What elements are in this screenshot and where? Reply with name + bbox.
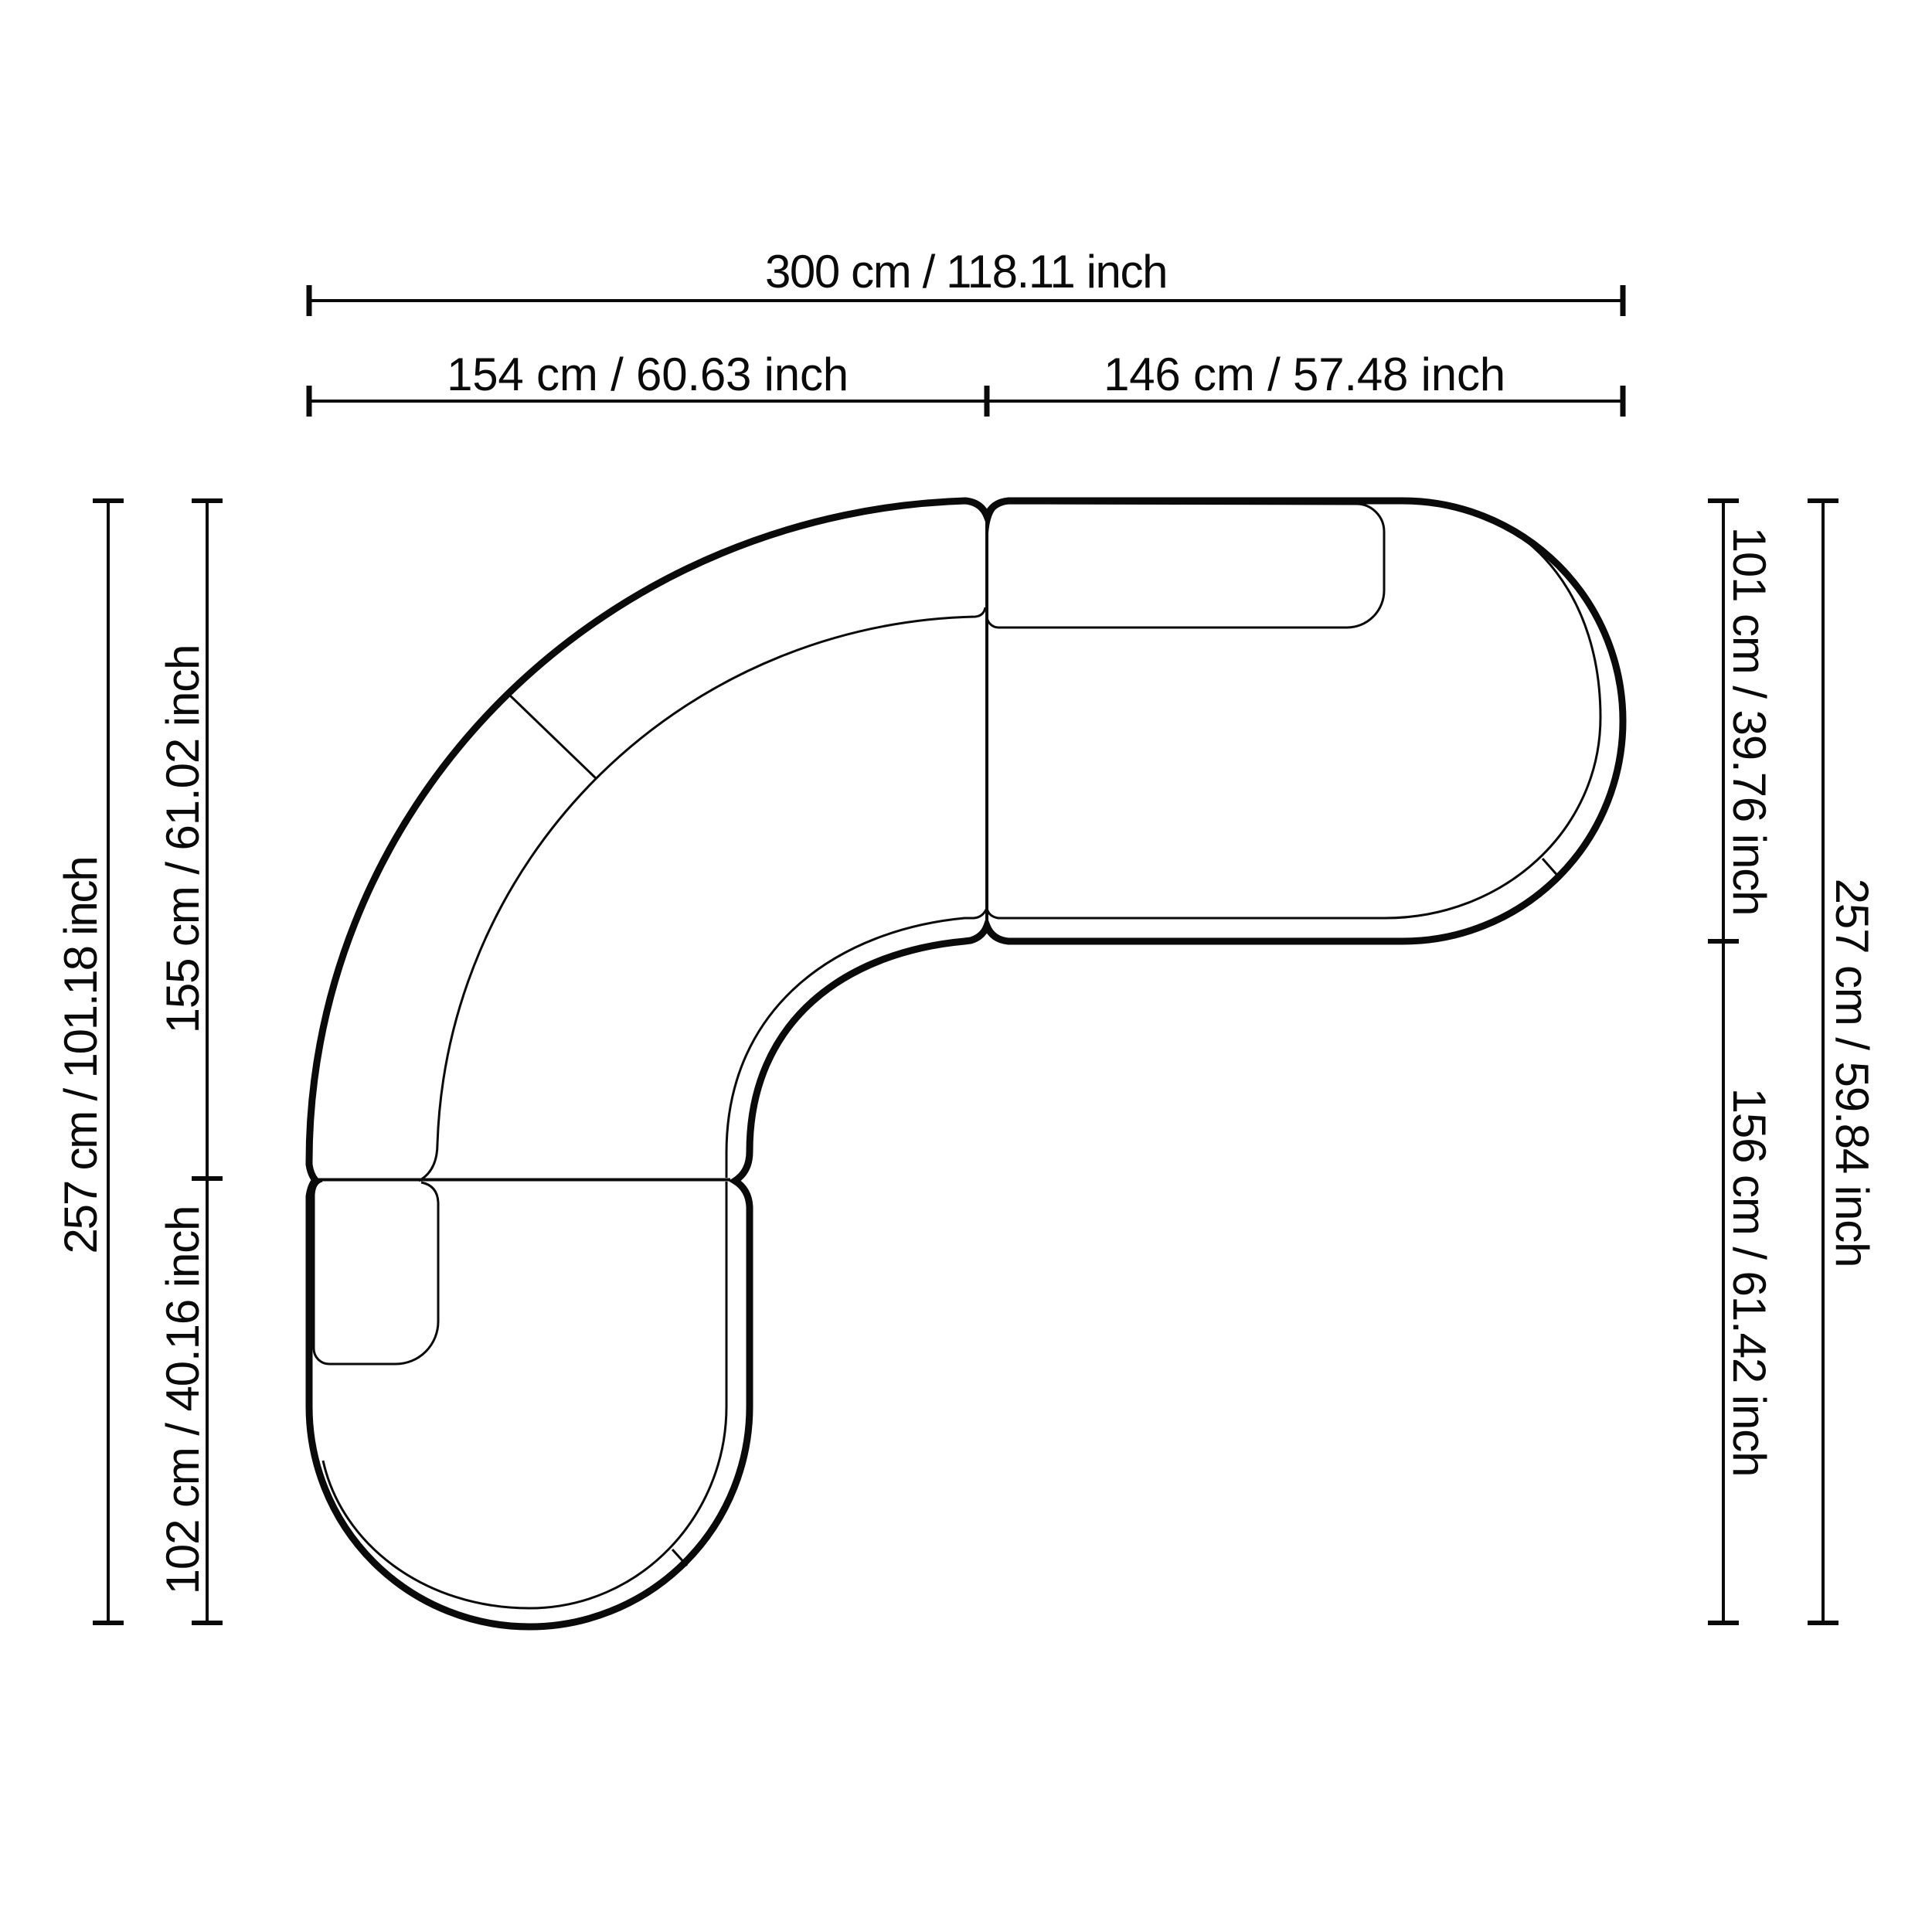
- svg-text:102 cm / 40.16 inch: 102 cm / 40.16 inch: [157, 1206, 209, 1595]
- svg-text:257 cm / 59.84 inch: 257 cm / 59.84 inch: [1826, 879, 1878, 1267]
- svg-text:257 cm / 101.18 inch: 257 cm / 101.18 inch: [55, 857, 107, 1253]
- svg-text:300 cm / 118.11 inch: 300 cm / 118.11 inch: [765, 246, 1167, 298]
- svg-text:154 cm / 60.63 inch: 154 cm / 60.63 inch: [447, 349, 849, 400]
- svg-text:155 cm / 61.02 inch: 155 cm / 61.02 inch: [157, 645, 209, 1034]
- svg-text:146 cm / 57.48 inch: 146 cm / 57.48 inch: [1104, 349, 1505, 400]
- svg-text:156 cm / 61.42 inch: 156 cm / 61.42 inch: [1723, 1088, 1775, 1477]
- svg-text:101 cm / 39.76 inch: 101 cm / 39.76 inch: [1723, 527, 1775, 916]
